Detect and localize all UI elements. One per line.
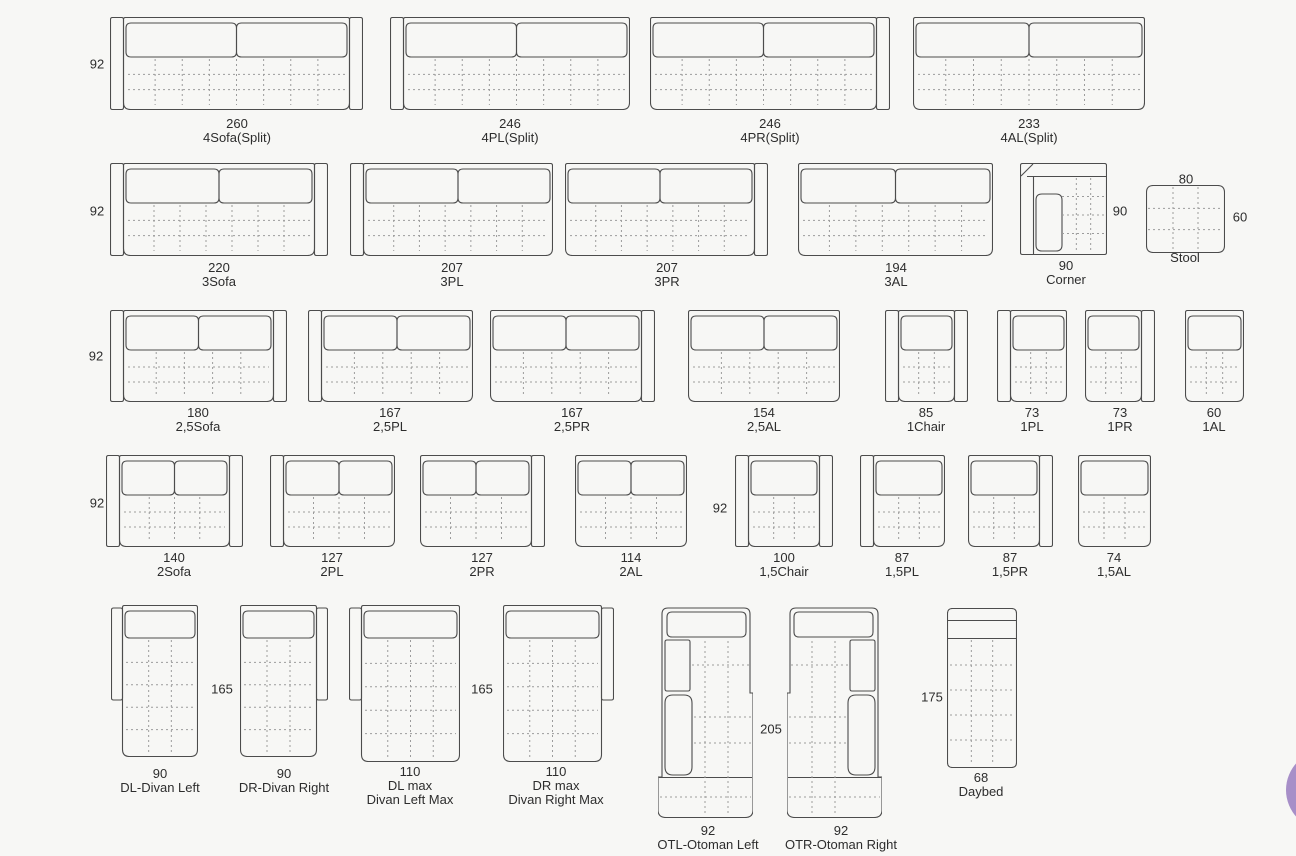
module-width-label: 180	[176, 406, 221, 420]
dimension-label: 90	[1113, 204, 1127, 219]
module-label: 1672,5PL	[373, 406, 407, 434]
module-drawing	[885, 310, 968, 402]
module-width-label: 87	[992, 551, 1028, 565]
module-width-label: 87	[885, 551, 919, 565]
module-drawing	[913, 17, 1145, 110]
module-name-label: Daybed	[959, 785, 1004, 799]
backrest-cushion	[126, 316, 199, 350]
module-2-5sofa	[110, 310, 287, 402]
module-drawing	[997, 310, 1067, 402]
module-name-label: 1AL	[1202, 420, 1225, 434]
armrest-right	[315, 164, 328, 256]
module-drawing	[240, 605, 328, 757]
module-drawing	[575, 455, 687, 547]
module-name-label: 4AL(Split)	[1000, 131, 1057, 145]
module-dr-max-divan-right-max	[503, 605, 614, 762]
module-name-label: 3AL	[884, 275, 907, 289]
module-name-label: 1Chair	[907, 420, 945, 434]
module-name-label: OTL-Otoman Left	[657, 838, 758, 852]
module-name-label: 3PR	[654, 275, 679, 289]
module-width-label: 127	[469, 551, 494, 565]
backrest-cushion	[896, 169, 991, 203]
module-width-label: 246	[481, 117, 538, 131]
backrest-cushion	[243, 611, 314, 638]
module-stool	[1146, 185, 1225, 253]
module-name-label: 4Sofa(Split)	[203, 131, 271, 145]
backrest-cushion	[660, 169, 752, 203]
seat-grid	[903, 352, 950, 397]
module-name-label: 4PL(Split)	[481, 131, 538, 145]
module-label: 741,5AL	[1097, 551, 1131, 579]
module-label: 2464PR(Split)	[740, 117, 799, 145]
module-drawing	[798, 163, 993, 256]
backrest-cushion	[901, 316, 952, 350]
module-4pl-split	[390, 17, 630, 110]
armrest-left	[351, 164, 364, 256]
module-width-label: 110	[367, 765, 454, 779]
module-drawing	[947, 608, 1017, 768]
backrest-cushion	[517, 23, 628, 57]
module-drawing	[106, 455, 243, 547]
armrest-right	[1040, 456, 1053, 547]
armrest-left	[111, 164, 124, 256]
backrest-cushion	[175, 461, 228, 495]
module-width-label: 92	[785, 824, 897, 838]
backrest-cushion	[122, 461, 175, 495]
seat-grid	[128, 59, 345, 105]
module-2sofa	[106, 455, 243, 547]
module-label: Stool	[1170, 251, 1200, 265]
seat-grid	[1148, 187, 1223, 251]
module-drawing	[860, 455, 945, 547]
armrest-right	[350, 18, 363, 110]
dimension-label: 92	[90, 57, 104, 72]
backrest-cushion	[653, 23, 764, 57]
backrest-cushion	[751, 461, 817, 495]
seat-grid	[803, 205, 988, 251]
module-width-label: 167	[373, 406, 407, 420]
module-drawing	[111, 605, 198, 757]
module-label: 92OTR-Otoman Right	[785, 824, 897, 852]
armrest-right	[274, 311, 287, 402]
module-name-label: DL max	[367, 779, 454, 793]
backrest-cushion	[876, 461, 942, 495]
module-width-label: 246	[740, 117, 799, 131]
armrest-right	[755, 164, 768, 256]
armrest-left	[736, 456, 749, 547]
armrest-left	[391, 18, 404, 110]
backrest-cushion	[366, 169, 458, 203]
module-drawing	[308, 310, 473, 402]
dimension-label: 92	[713, 501, 727, 516]
seat-grid	[1090, 352, 1137, 397]
module-width-label: 60	[1202, 406, 1225, 420]
module-label: 601AL	[1202, 406, 1225, 434]
module-drawing	[1020, 163, 1107, 255]
side-backrest	[850, 640, 875, 691]
module-label: 1943AL	[884, 261, 907, 289]
module-width-label: 260	[203, 117, 271, 131]
module-name-label: DR max	[508, 779, 603, 793]
seat-grid	[918, 59, 1140, 105]
module-name-label: DL-Divan Left	[120, 781, 199, 795]
module-label: 1802,5Sofa	[176, 406, 221, 434]
module-label: 851Chair	[907, 406, 945, 434]
seat-grid	[368, 205, 548, 251]
seat-grid	[495, 352, 637, 397]
seat-grid	[288, 497, 390, 542]
backrest-cushion	[324, 316, 397, 350]
backrest-cushion	[219, 169, 312, 203]
module-name-label: 1PL	[1020, 420, 1043, 434]
armrest-right	[1142, 311, 1155, 402]
seat-grid	[878, 497, 940, 542]
seat-grid	[408, 59, 625, 105]
module-name-label: Divan Left Max	[367, 793, 454, 807]
module-3pr	[565, 163, 768, 256]
seat-grid	[753, 497, 815, 542]
backrest-cushion	[406, 23, 517, 57]
armrest-right	[602, 608, 614, 700]
seat-grid	[425, 497, 527, 542]
backrest-cushion	[631, 461, 684, 495]
module-name-label: 4PR(Split)	[740, 131, 799, 145]
module-drawing	[1078, 455, 1151, 547]
module-name-label: 1PR	[1107, 420, 1132, 434]
module-width-label: 154	[747, 406, 781, 420]
module-1chair	[885, 310, 968, 402]
module-dl-divan-left	[111, 605, 198, 757]
module-2pr	[420, 455, 545, 547]
module-label: 2604Sofa(Split)	[203, 117, 271, 145]
module-dl-max-divan-left-max	[349, 605, 460, 762]
module-name-label: 1,5AL	[1097, 565, 1131, 579]
backrest-cushion	[339, 461, 392, 495]
module-label: 1542,5AL	[747, 406, 781, 434]
module-label: 1142AL	[619, 551, 642, 579]
seat-grid	[126, 640, 194, 752]
module-name-label: 1,5PL	[885, 565, 919, 579]
module-drawing	[1185, 310, 1244, 402]
seat-grid	[1190, 352, 1239, 397]
armrest-right	[230, 456, 243, 547]
module-width-label: 90	[120, 767, 199, 781]
backrest-cushion	[667, 612, 746, 637]
module-drawing	[1146, 185, 1225, 253]
backrest-cushion	[493, 316, 566, 350]
module-name-label: 2PR	[469, 565, 494, 579]
dimension-label: 92	[89, 349, 103, 364]
module-width-label: 68	[959, 771, 1004, 785]
module-1-5al	[1078, 455, 1151, 547]
module-drawing	[490, 310, 655, 402]
module-name-label: 2,5Sofa	[176, 420, 221, 434]
module-drawing	[968, 455, 1053, 547]
module-drawing	[658, 605, 753, 818]
module-drawing	[349, 605, 460, 762]
module-label: 1272PR	[469, 551, 494, 579]
armrest-left	[350, 608, 362, 700]
module-label: 871,5PL	[885, 551, 919, 579]
module-otr-otoman-right	[787, 605, 882, 818]
armrest-left	[309, 311, 322, 402]
armrest-left	[112, 608, 123, 700]
armrest-right	[955, 311, 968, 402]
module-4pr-split	[650, 17, 890, 110]
module-drawing	[735, 455, 833, 547]
backrest-cushion	[1029, 23, 1142, 57]
module-drawing	[650, 17, 890, 110]
module-label: 871,5PR	[992, 551, 1028, 579]
module-2-5pl	[308, 310, 473, 402]
backrest-cushion	[691, 316, 764, 350]
module-label: 2203Sofa	[202, 261, 236, 289]
module-name-label: Stool	[1170, 251, 1200, 265]
backrest-cushion	[1088, 316, 1139, 350]
module-name-label: DR-Divan Right	[239, 781, 329, 795]
backrest-cushion	[199, 316, 272, 350]
module-drawing	[503, 605, 614, 762]
module-name-label: 2,5PL	[373, 420, 407, 434]
floating-widget-button[interactable]	[1286, 750, 1296, 830]
backrest-cushion	[397, 316, 470, 350]
armrest-right	[642, 311, 655, 402]
seat-grid	[1062, 178, 1105, 252]
seat-grid	[128, 205, 310, 251]
seat-grid	[950, 640, 1014, 765]
armrest-right	[877, 18, 890, 110]
module-label: 1001,5Chair	[759, 551, 808, 579]
module-width-label: 140	[157, 551, 191, 565]
backrest-cushion	[286, 461, 339, 495]
module-label: 90DL-Divan Left	[120, 767, 199, 795]
module-label: 90Corner	[1046, 259, 1086, 287]
module-width-label: 220	[202, 261, 236, 275]
backrest-cushion	[126, 23, 237, 57]
module-width-label: 207	[654, 261, 679, 275]
module-name-label: 1,5Chair	[759, 565, 808, 579]
module-drawing	[420, 455, 545, 547]
armrest-left	[111, 311, 124, 402]
backrest-cushion	[1036, 194, 1062, 251]
side-cushion	[665, 695, 692, 775]
module-drawing	[390, 17, 630, 110]
module-1pl	[997, 310, 1067, 402]
module-width-label: 73	[1107, 406, 1132, 420]
module-width-label: 73	[1020, 406, 1043, 420]
module-name-label: 2PL	[320, 565, 343, 579]
module-label: 2073PL	[440, 261, 463, 289]
seat-grid	[365, 640, 456, 757]
module-corner	[1020, 163, 1107, 255]
module-name-label: OTR-Otoman Right	[785, 838, 897, 852]
module-width-label: 114	[619, 551, 642, 565]
module-width-label: 90	[239, 767, 329, 781]
dimension-label: 60	[1233, 210, 1247, 225]
backrest-cushion	[566, 316, 639, 350]
seat-grid	[244, 640, 313, 752]
dimension-label: 80	[1179, 172, 1193, 187]
armrest-right	[532, 456, 545, 547]
module-drawing	[787, 605, 882, 818]
module-label: 1272PL	[320, 551, 343, 579]
module-otl-otoman-left	[658, 605, 753, 818]
backrest-cushion	[1188, 316, 1241, 350]
dimension-label: 205	[760, 722, 782, 737]
backrest-cushion	[1081, 461, 1148, 495]
module-width-label: 207	[440, 261, 463, 275]
backrest-cushion	[764, 316, 837, 350]
module-label: 2334AL(Split)	[1000, 117, 1057, 145]
armrest-left	[998, 311, 1011, 402]
module-1-5pr	[968, 455, 1053, 547]
seat-grid	[326, 352, 468, 397]
module-name-label: 2,5PR	[554, 420, 590, 434]
backrest-cushion	[794, 612, 873, 637]
module-label: 90DR-Divan Right	[239, 767, 329, 795]
module-2pl	[270, 455, 395, 547]
backrest-cushion	[764, 23, 875, 57]
seat-grid	[973, 497, 1035, 542]
dimension-label: 175	[921, 690, 943, 705]
armrest-left	[886, 311, 899, 402]
module-3pl	[350, 163, 553, 256]
backrest-cushion	[364, 611, 457, 638]
backrest-cushion	[423, 461, 476, 495]
module-label: 1672,5PR	[554, 406, 590, 434]
module-width-label: 110	[508, 765, 603, 779]
backrest-cushion	[125, 611, 195, 638]
module-2-5al	[688, 310, 840, 402]
module-name-label: 3Sofa	[202, 275, 236, 289]
module-dr-divan-right	[240, 605, 328, 757]
module-label: 731PR	[1107, 406, 1132, 434]
backrest-cushion	[568, 169, 660, 203]
module-drawing	[688, 310, 840, 402]
module-drawing	[270, 455, 395, 547]
backrest-cushion	[476, 461, 529, 495]
seat-grid	[1083, 497, 1146, 542]
armrest-right	[820, 456, 833, 547]
armrest-left	[271, 456, 284, 547]
module-label: 110DL maxDivan Left Max	[367, 765, 454, 807]
module-2al	[575, 455, 687, 547]
module-width-label: 100	[759, 551, 808, 565]
module-width-label: 92	[657, 824, 758, 838]
backrest-cushion	[801, 169, 896, 203]
backrest-cushion	[578, 461, 631, 495]
seat-grid	[124, 497, 225, 542]
backrest-cushion	[971, 461, 1037, 495]
module-width-label: 90	[1046, 259, 1086, 273]
module-1al	[1185, 310, 1244, 402]
module-name-label: 2Sofa	[157, 565, 191, 579]
backrest-cushion	[916, 23, 1029, 57]
module-1-5chair	[735, 455, 833, 547]
module-width-label: 194	[884, 261, 907, 275]
module-width-label: 233	[1000, 117, 1057, 131]
module-name-label: Divan Right Max	[508, 793, 603, 807]
seat-grid	[507, 640, 598, 757]
module-3al	[798, 163, 993, 256]
armrest-left	[861, 456, 874, 547]
module-daybed	[947, 608, 1017, 768]
seat-grid	[580, 497, 682, 542]
module-label: 2073PR	[654, 261, 679, 289]
module-4al-split	[913, 17, 1145, 110]
dimension-label: 165	[211, 682, 233, 697]
seat-grid	[1015, 352, 1062, 397]
module-label: 731PL	[1020, 406, 1043, 434]
dimension-label: 92	[90, 204, 104, 219]
module-width-label: 127	[320, 551, 343, 565]
armrest-right	[317, 608, 328, 700]
module-width-label: 74	[1097, 551, 1131, 565]
module-width-label: 167	[554, 406, 590, 420]
backrest-cushion	[506, 611, 599, 638]
module-name-label: 2AL	[619, 565, 642, 579]
module-label: 2464PL(Split)	[481, 117, 538, 145]
module-name-label: Corner	[1046, 273, 1086, 287]
module-label: 68Daybed	[959, 771, 1004, 799]
module-label: 110DR maxDivan Right Max	[508, 765, 603, 807]
module-drawing	[110, 310, 287, 402]
seat-grid	[570, 205, 750, 251]
backrest-cushion	[126, 169, 219, 203]
armrest-left	[107, 456, 120, 547]
module-drawing	[110, 163, 328, 256]
module-drawing	[350, 163, 553, 256]
side-cushion	[848, 695, 875, 775]
module-label: 1402Sofa	[157, 551, 191, 579]
backrest-cushion	[237, 23, 348, 57]
seat-grid	[655, 59, 872, 105]
diagram-canvas: 2604Sofa(Split)2464PL(Split)2464PR(Split…	[0, 0, 1296, 856]
seat-grid	[128, 352, 269, 397]
backrest-cushion	[1013, 316, 1064, 350]
module-name-label: 2,5AL	[747, 420, 781, 434]
module-4sofa-split	[110, 17, 363, 110]
module-label: 92OTL-Otoman Left	[657, 824, 758, 852]
module-drawing	[565, 163, 768, 256]
module-1-5pl	[860, 455, 945, 547]
module-2-5pr	[490, 310, 655, 402]
module-1pr	[1085, 310, 1155, 402]
side-backrest	[665, 640, 690, 691]
dimension-label: 165	[471, 682, 493, 697]
seat-grid	[693, 352, 835, 397]
armrest-left	[111, 18, 124, 110]
module-3sofa	[110, 163, 328, 256]
module-width-label: 85	[907, 406, 945, 420]
module-drawing	[110, 17, 363, 110]
module-name-label: 1,5PR	[992, 565, 1028, 579]
dimension-label: 92	[90, 496, 104, 511]
module-drawing	[1085, 310, 1155, 402]
module-name-label: 3PL	[440, 275, 463, 289]
backrest-cushion	[458, 169, 550, 203]
